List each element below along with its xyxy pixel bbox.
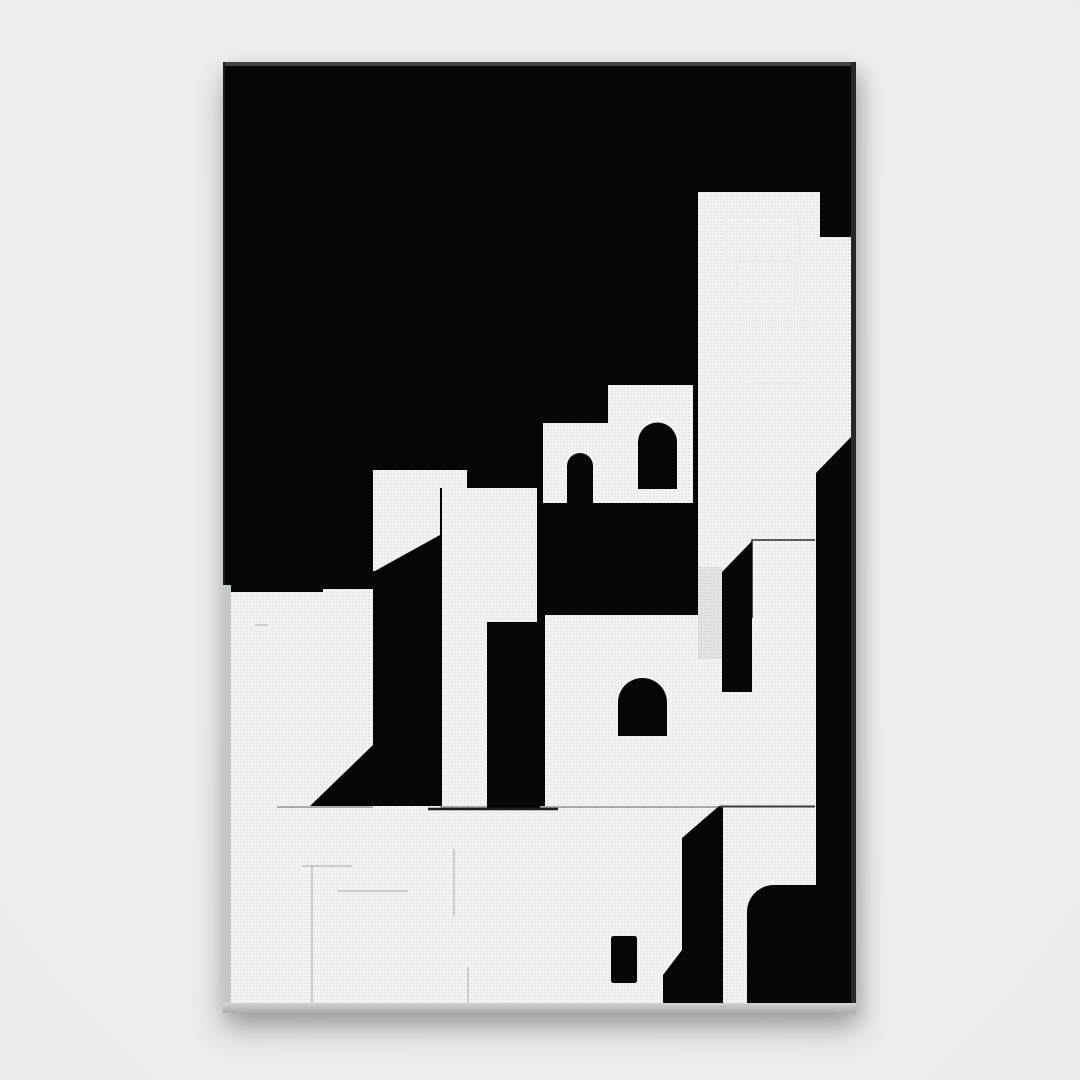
wall-arch-doorway bbox=[618, 678, 667, 736]
large-arch-doorway bbox=[638, 423, 677, 490]
central-shadow-column bbox=[487, 622, 540, 808]
frame-top-edge bbox=[223, 62, 856, 66]
page-background: { "page": { "background_color": "#eef0f1… bbox=[0, 0, 1080, 1080]
small-arch-doorway bbox=[567, 453, 593, 503]
frame-left-edge bbox=[223, 62, 225, 585]
tower-shadow-halftone-strip bbox=[698, 567, 722, 659]
small-dark-doorway bbox=[611, 936, 637, 983]
canvas-left-side-edge bbox=[223, 585, 231, 1003]
right-edge-shadow-band bbox=[816, 437, 851, 1003]
foreground-ground-plane bbox=[231, 806, 818, 1003]
artwork-graphic bbox=[223, 62, 856, 1013]
canvas-bottom-side-edge bbox=[223, 1003, 856, 1013]
frame-right-edge bbox=[851, 62, 856, 1003]
bottom-right-rounded-shadow bbox=[747, 885, 816, 1003]
small-front-tower bbox=[752, 540, 815, 618]
framed-canvas-artwork bbox=[223, 62, 856, 1013]
